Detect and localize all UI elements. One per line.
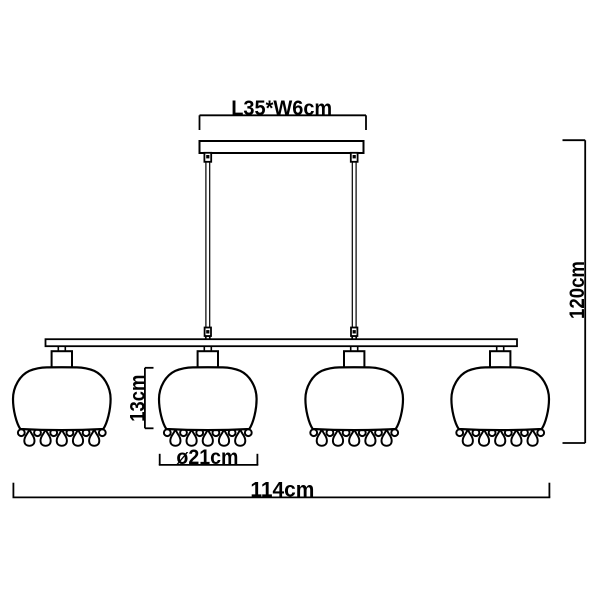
svg-text:120cm: 120cm [565,261,589,319]
svg-text:114cm: 114cm [250,477,314,501]
svg-text:13cm: 13cm [126,375,150,422]
svg-text:ø21cm: ø21cm [176,445,238,469]
svg-text:L35*W6cm: L35*W6cm [231,96,332,120]
